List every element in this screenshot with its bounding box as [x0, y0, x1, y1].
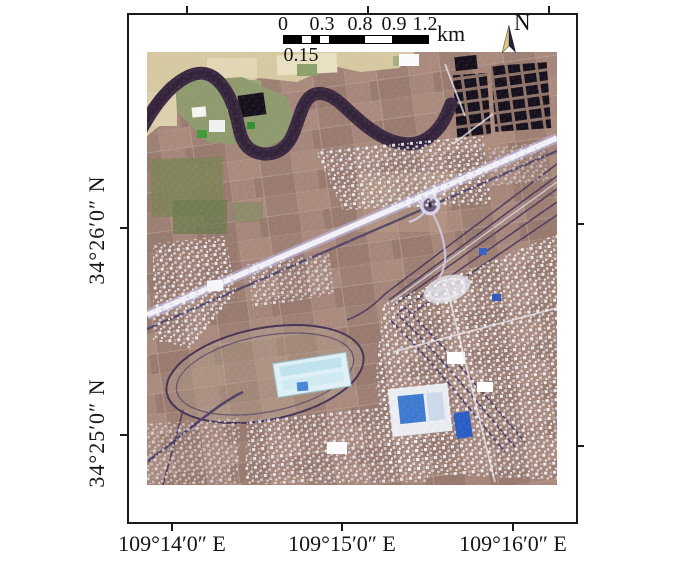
- graticule-tick-right: [577, 445, 584, 447]
- lon-label: 109°16′0″ E: [459, 531, 567, 557]
- scale-tick-label: 0.9: [382, 13, 407, 36]
- lon-label: 109°14′0″ E: [118, 531, 226, 557]
- scale-bar-segments: [283, 35, 429, 44]
- scale-tick-label: 0: [278, 13, 288, 36]
- noise-overlay: [147, 52, 557, 485]
- graticule-tick-bottom: [512, 524, 514, 531]
- graticule-tick-left: [120, 434, 127, 436]
- scale-tick-label: 0.8: [348, 13, 373, 36]
- graticule-tick-left: [120, 227, 127, 229]
- lat-label: 34°26′0″ N: [84, 175, 110, 284]
- graticule-tick-top: [548, 6, 550, 13]
- graticule-tick-bottom: [341, 524, 343, 531]
- north-arrow-icon: [498, 24, 520, 56]
- scale-tick-label: 1.2: [413, 13, 438, 36]
- map-figure: { "scalebar": { "tick_labels": ["0", "0.…: [0, 0, 700, 565]
- graticule-tick-top: [186, 6, 188, 13]
- graticule-tick-right: [577, 223, 584, 225]
- scale-tick-label: 0.3: [310, 13, 335, 36]
- graticule-tick-top: [367, 6, 369, 13]
- lon-label: 109°15′0″ E: [288, 531, 396, 557]
- scale-unit-label: km: [437, 21, 465, 47]
- scale-sub-label: 0.15: [284, 44, 319, 67]
- scale-bar: 0 0.3 0.8 0.9 1.2 0.15 km: [283, 13, 493, 73]
- graticule-tick-bottom: [171, 524, 173, 531]
- lat-label: 34°25′0″ N: [84, 378, 110, 487]
- satellite-image: [147, 52, 557, 485]
